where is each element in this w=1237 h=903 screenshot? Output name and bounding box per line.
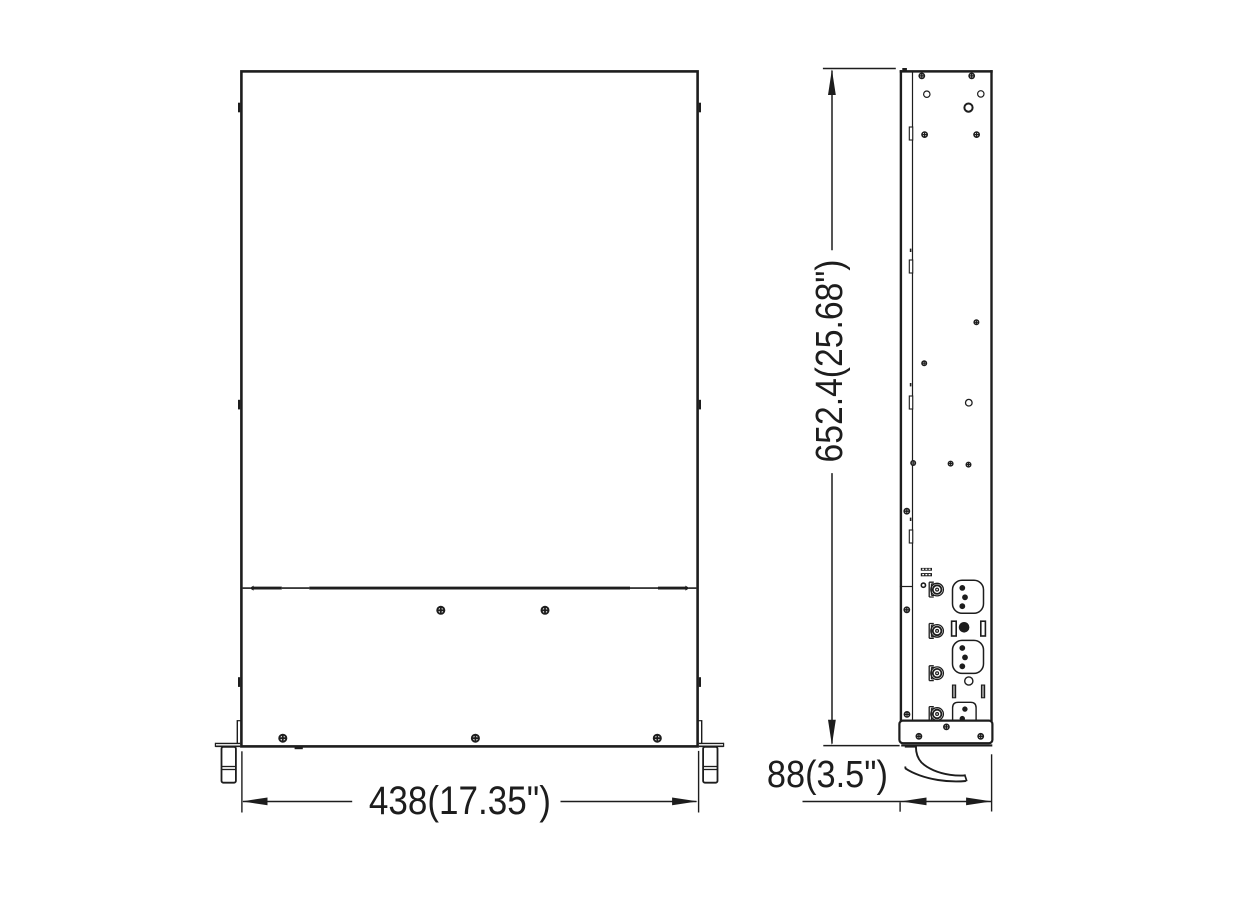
svg-text:652.4(25.68"): 652.4(25.68")	[808, 260, 851, 463]
svg-text:88(3.5"): 88(3.5")	[767, 754, 888, 796]
svg-text:438(17.35"): 438(17.35")	[369, 779, 551, 823]
